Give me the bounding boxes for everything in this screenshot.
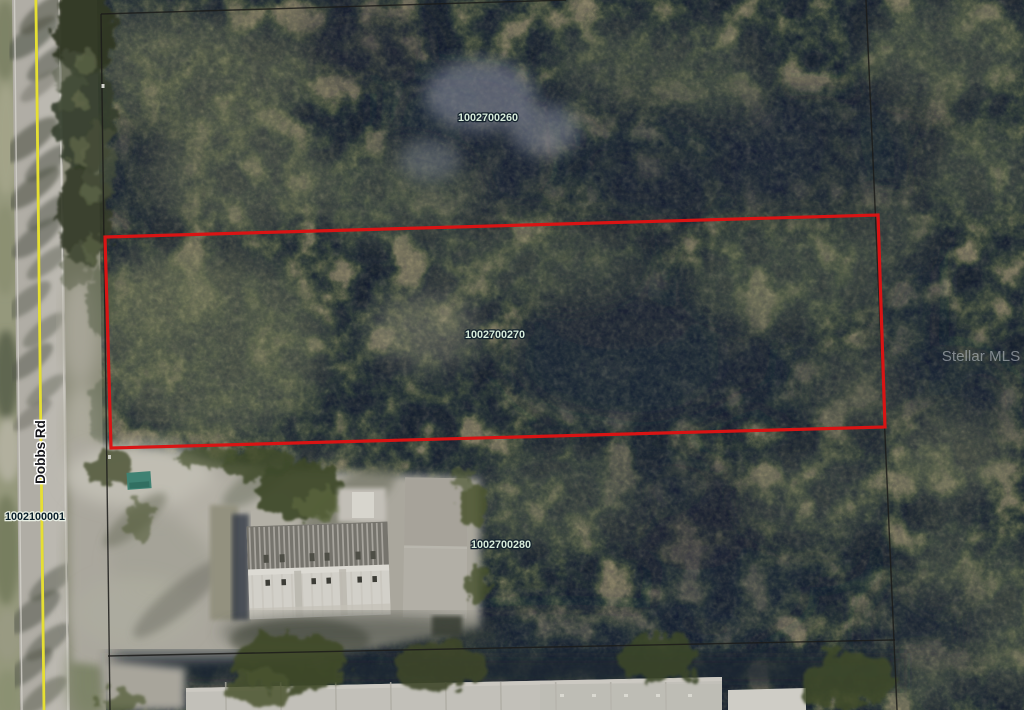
svg-text:Dobbs Rd: Dobbs Rd (33, 420, 48, 484)
svg-text:1002100001: 1002100001 (5, 511, 65, 523)
svg-text:1002700260: 1002700260 (458, 112, 518, 124)
svg-text:1002700270: 1002700270 (465, 329, 525, 341)
svg-text:Stellar MLS: Stellar MLS (942, 348, 1021, 365)
svg-text:1002700280: 1002700280 (471, 539, 531, 551)
